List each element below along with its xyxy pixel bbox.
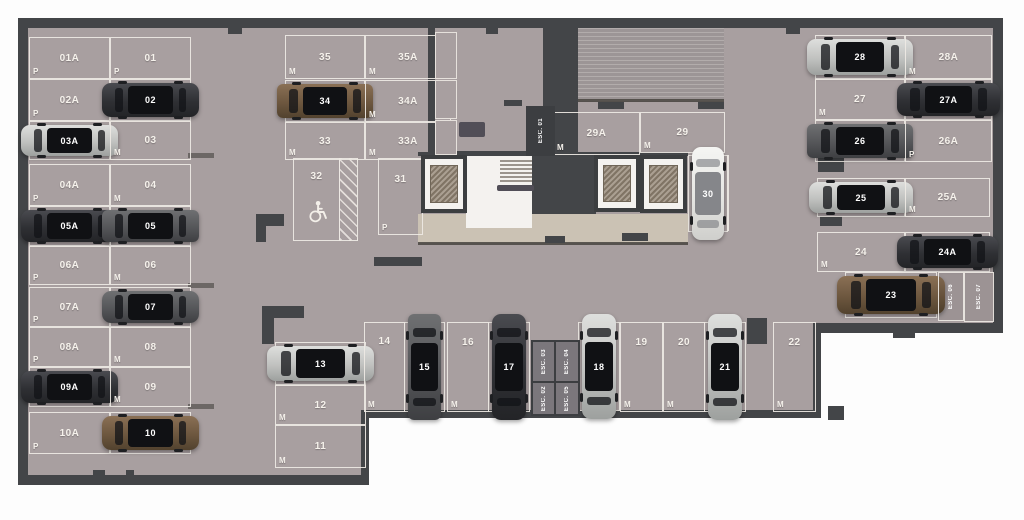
spot-number: 17 xyxy=(503,362,514,372)
wall-34 xyxy=(893,328,915,338)
windshield xyxy=(821,129,831,154)
spot-size-label: M xyxy=(114,194,121,203)
parking-spot-25: 25M xyxy=(817,178,905,217)
rear-window-glass xyxy=(98,130,106,151)
wheel xyxy=(913,115,922,118)
wall-20 xyxy=(532,152,596,214)
spot-size-label: P xyxy=(33,67,38,76)
spot-size-label: M xyxy=(289,67,296,76)
parking-spot-26: 26M xyxy=(815,120,905,162)
spot-number: 15 xyxy=(419,362,430,372)
wheel xyxy=(406,331,409,340)
car-roof: 13 xyxy=(296,349,345,378)
windshield xyxy=(115,214,124,237)
stairwell-label: ESC. 06 xyxy=(948,284,954,309)
parking-spot-23: 23M xyxy=(845,272,937,318)
parking-spot-29A: 29AM xyxy=(553,112,640,155)
rear-window-glass xyxy=(978,88,986,110)
spot-number: 34 xyxy=(319,96,330,106)
spot-number: 10A xyxy=(30,413,109,453)
spot-number: 10 xyxy=(145,428,156,438)
rear-window-glass xyxy=(179,88,187,111)
tread-45 xyxy=(500,176,532,178)
car-roof: 28 xyxy=(836,42,885,72)
spot-number: 06A xyxy=(30,247,109,284)
wall-24 xyxy=(262,306,274,344)
wheel xyxy=(887,37,896,40)
spot-size-label: M xyxy=(909,205,916,214)
car-top-view: 30 xyxy=(692,147,724,240)
car-top-view: 24A xyxy=(897,236,998,268)
car-top-view: 23 xyxy=(837,276,945,314)
windshield xyxy=(910,88,919,112)
spot-number: 08 xyxy=(111,328,190,366)
wall-31 xyxy=(622,233,648,241)
rear-window-glass xyxy=(352,352,361,376)
spot-number: 26 xyxy=(854,136,865,146)
spot-number: 24 xyxy=(818,233,904,271)
rear-window-glass xyxy=(179,421,187,444)
car-top-view: 10 xyxy=(102,416,199,450)
stairwell-label: ESC. 02 xyxy=(541,386,547,411)
spot-number: 28A xyxy=(906,36,991,78)
wheel xyxy=(174,241,183,244)
windshield xyxy=(823,186,832,208)
wheel xyxy=(913,267,922,270)
wheel xyxy=(525,394,528,403)
wheel xyxy=(37,241,46,244)
car-roof: 07 xyxy=(128,294,173,320)
wheel xyxy=(706,331,709,340)
parking-spot-26A: 26AP xyxy=(905,120,992,162)
car-roof: 25 xyxy=(837,185,885,210)
parking-spot-04: 04M xyxy=(110,164,191,206)
spot-size-label: M xyxy=(909,67,916,76)
spot-size-label: M xyxy=(821,260,828,269)
parking-spot-01A: 01AP xyxy=(29,37,110,79)
tick-54 xyxy=(188,283,214,288)
wheel xyxy=(37,208,46,211)
spot-number: 02A xyxy=(30,80,109,120)
parking-spot-09: 09M xyxy=(110,367,191,407)
parking-spot-10A: 10AP xyxy=(29,412,110,454)
spot-size-label: M xyxy=(279,456,286,465)
wall-29 xyxy=(698,102,724,109)
wheel xyxy=(887,122,896,125)
spot-number: 22 xyxy=(774,323,815,411)
wheel xyxy=(854,274,863,277)
wheelchair-icon xyxy=(306,200,328,224)
wheel xyxy=(118,289,127,292)
wheel xyxy=(93,402,102,405)
wall-36 xyxy=(486,28,498,34)
spot-size-label: P xyxy=(33,315,38,324)
parking-spot-06A: 06AP xyxy=(29,246,110,285)
windshield xyxy=(34,129,43,151)
elevator-3 xyxy=(640,155,687,213)
fixture-51 xyxy=(459,122,485,137)
car-roof: 34 xyxy=(303,87,347,115)
spot-number: 06 xyxy=(111,247,190,284)
spot-number: 07 xyxy=(145,302,156,312)
parking-spot-02A: 02AP xyxy=(29,79,110,121)
wheel xyxy=(93,155,102,158)
wheel xyxy=(118,241,127,244)
windshield xyxy=(910,240,919,263)
wheel xyxy=(284,380,293,383)
wheel xyxy=(174,208,183,211)
parking-spot-15: 15M xyxy=(404,322,445,412)
spot-number: 25 xyxy=(855,193,866,203)
car-top-view: 34 xyxy=(277,84,373,118)
stairwell-esc-05: ESC. 05 xyxy=(554,381,580,416)
wheel xyxy=(118,449,127,452)
spot-number: 08A xyxy=(30,328,109,366)
wall-8 xyxy=(18,18,28,485)
car-top-view: 15 xyxy=(408,314,441,420)
wheel xyxy=(580,393,583,402)
wheel xyxy=(741,394,744,403)
windshield xyxy=(497,328,522,338)
parking-spot-31: 31P xyxy=(378,158,423,235)
wheel xyxy=(887,74,896,77)
car-top-view: 05 xyxy=(102,210,199,242)
parking-spot-07: 07M xyxy=(110,287,191,327)
wheel xyxy=(887,157,896,160)
parking-spot-32: 32 xyxy=(293,158,340,241)
car-top-view: 03A xyxy=(21,125,118,156)
parking-spot-27: 27M xyxy=(815,79,905,120)
wheel xyxy=(824,122,833,125)
windshield xyxy=(281,351,291,376)
parking-spot-30: 30P xyxy=(688,155,728,232)
spot-number: 01 xyxy=(111,38,190,78)
wheel xyxy=(919,313,928,316)
car-roof: 03A xyxy=(47,128,92,153)
wheel xyxy=(37,123,46,126)
wheel xyxy=(580,331,583,340)
rear-window-glass xyxy=(497,398,520,406)
spot-size-label: P xyxy=(909,150,914,159)
spot-number: 05A xyxy=(60,221,78,231)
wheel xyxy=(824,74,833,77)
car-top-view: 26 xyxy=(807,124,913,158)
white-40 xyxy=(466,156,532,228)
parking-spot-28A: 28AM xyxy=(905,35,992,79)
wheel xyxy=(824,37,833,40)
hatch-57 xyxy=(339,158,358,241)
parking-spot-02: 02M xyxy=(110,79,191,121)
stairwell-esc-06: ESC. 06 xyxy=(938,272,964,321)
wheel xyxy=(37,155,46,158)
parking-spot-17: 17M xyxy=(488,322,530,412)
shelf-50 xyxy=(435,120,457,155)
spot-size-label: M xyxy=(114,395,121,404)
wheel xyxy=(292,117,301,120)
parking-spot-13: 13M xyxy=(275,342,366,385)
parking-spot-20: 20M xyxy=(663,322,705,412)
parking-spot-25A: 25AM xyxy=(905,178,990,217)
car-roof: 21 xyxy=(711,343,739,392)
wall-37 xyxy=(786,28,800,34)
tread-41 xyxy=(500,160,532,162)
parking-spot-05A: 05AP xyxy=(29,206,110,246)
stairwell-label: ESC. 07 xyxy=(976,284,982,309)
spot-number: 24A xyxy=(938,247,956,257)
wall-10 xyxy=(18,475,369,485)
wheel xyxy=(118,116,127,119)
wheel xyxy=(292,82,301,85)
car-top-view: 02 xyxy=(102,83,199,117)
spot-number: 03 xyxy=(111,122,190,159)
spot-number: 23 xyxy=(885,290,896,300)
spot-number: 21 xyxy=(719,362,730,372)
car-roof: 27A xyxy=(925,86,972,113)
wheel xyxy=(118,414,127,417)
wall-52 xyxy=(504,100,522,106)
wall-32 xyxy=(374,257,422,266)
wheel xyxy=(174,81,183,84)
rear-window-glass xyxy=(891,45,899,70)
spot-number: 04 xyxy=(111,165,190,205)
elevator-cab xyxy=(430,165,458,203)
spot-number: 27A xyxy=(939,95,957,105)
wheel xyxy=(490,394,493,403)
spot-number: 12 xyxy=(276,386,365,424)
spot-number: 35 xyxy=(286,36,364,78)
spot-size-label: M xyxy=(369,148,376,157)
spot-number: 09 xyxy=(111,368,190,406)
wall-30 xyxy=(545,236,565,243)
car-top-view: 25 xyxy=(809,182,913,213)
wheel xyxy=(975,81,984,84)
spot-size-label: P xyxy=(33,355,38,364)
wheel xyxy=(975,115,984,118)
car-roof: 05 xyxy=(128,213,173,239)
rear-window-glass xyxy=(98,376,106,398)
spot-size-label: P xyxy=(33,273,38,282)
parking-spot-04A: 04AP xyxy=(29,164,110,206)
stairwell-label: ESC. 05 xyxy=(564,386,570,411)
windshield xyxy=(413,328,437,338)
spot-size-label: M xyxy=(369,110,376,119)
spot-size-label: M xyxy=(279,413,286,422)
car-top-view: 09A xyxy=(21,371,118,403)
spot-number: 33 xyxy=(286,123,364,159)
wheel xyxy=(826,212,835,215)
fixture-47 xyxy=(497,185,534,191)
parking-spot-07A: 07AP xyxy=(29,287,110,327)
wheel xyxy=(723,162,726,171)
car-roof: 05A xyxy=(47,213,92,239)
elevator-1 xyxy=(421,155,467,213)
parking-spot-09A: 09AP xyxy=(29,367,110,407)
rear-window-glass xyxy=(891,129,899,152)
spot-size-label: M xyxy=(368,400,375,409)
windshield xyxy=(289,89,298,114)
stairwell-esc-01: ESC. 01 xyxy=(526,106,555,156)
wall-22 xyxy=(256,214,266,242)
wheel xyxy=(174,289,183,292)
windshield xyxy=(821,44,831,70)
wheel xyxy=(887,212,896,215)
spot-number: 13 xyxy=(315,359,326,369)
spot-size-label: M xyxy=(644,141,651,150)
windshield xyxy=(34,375,43,398)
wheel xyxy=(913,234,922,237)
spot-size-label: P xyxy=(382,223,387,232)
spot-number: 09A xyxy=(60,382,78,392)
ramp-5 xyxy=(577,28,724,102)
parking-spot-14: 14M xyxy=(364,322,405,412)
elevator-cab xyxy=(649,165,678,203)
spot-number: 01A xyxy=(30,38,109,78)
rear-window-glass xyxy=(179,215,187,237)
tread-42 xyxy=(500,164,532,166)
parking-spot-03A: 03AP xyxy=(29,121,110,160)
spot-size-label: M xyxy=(289,148,296,157)
car-top-view: 27A xyxy=(897,83,1000,116)
car-roof: 09A xyxy=(47,374,92,400)
wall-27 xyxy=(820,216,842,226)
windshield xyxy=(713,328,738,338)
parking-spot-12: 12M xyxy=(275,385,366,425)
parking-spot-19: 19M xyxy=(620,322,663,412)
tick-53 xyxy=(188,153,214,158)
car-roof: 24A xyxy=(924,239,970,265)
parking-spot-05: 05M xyxy=(110,206,191,246)
wheel xyxy=(490,331,493,340)
car-roof: 26 xyxy=(836,127,885,155)
wall-39 xyxy=(126,470,134,476)
wheel xyxy=(913,81,922,84)
wheel xyxy=(723,216,726,225)
spot-size-label: M xyxy=(114,355,121,364)
wheel xyxy=(741,331,744,340)
wheel xyxy=(93,241,102,244)
rear-window-glass xyxy=(922,282,931,308)
wheel xyxy=(615,393,618,402)
wheel xyxy=(440,394,443,403)
wheel xyxy=(348,380,357,383)
spot-size-label: M xyxy=(369,67,376,76)
wheel xyxy=(525,331,528,340)
windshield xyxy=(115,421,124,446)
wheel xyxy=(118,322,127,325)
parking-spot-08A: 08AP xyxy=(29,327,110,367)
stairwell-label: ESC. 04 xyxy=(564,349,570,374)
wheel xyxy=(824,157,833,160)
wheel xyxy=(174,414,183,417)
car-roof: 02 xyxy=(128,86,173,114)
wall-25 xyxy=(747,318,767,344)
wheel xyxy=(826,180,835,183)
parking-spot-11: 11M xyxy=(275,425,366,468)
windshield xyxy=(587,328,612,337)
spot-size-label: M xyxy=(114,148,121,157)
spot-size-label: M xyxy=(114,273,121,282)
spot-number: 19 xyxy=(621,323,662,411)
car-roof: 18 xyxy=(585,342,613,390)
wheel xyxy=(615,331,618,340)
rear-window-glass xyxy=(353,89,361,112)
wall-38 xyxy=(93,470,105,476)
spot-number: 05 xyxy=(145,221,156,231)
spot-number: 26A xyxy=(906,121,991,161)
parking-spot-34: 34M xyxy=(285,80,365,122)
wheel xyxy=(973,234,982,237)
spot-number: 03A xyxy=(60,136,78,146)
wheel xyxy=(973,267,982,270)
spot-size-label: M xyxy=(451,400,458,409)
windshield xyxy=(115,295,124,318)
shelf-48 xyxy=(435,32,457,79)
parking-spot-27A: 27AP xyxy=(905,79,992,120)
wheel xyxy=(37,402,46,405)
spot-size-label: M xyxy=(667,400,674,409)
wheel xyxy=(284,344,293,347)
spot-number: 29A xyxy=(554,113,639,154)
wheel xyxy=(406,394,409,403)
parking-spot-16: 16M xyxy=(447,322,489,412)
shelf-49 xyxy=(435,80,457,119)
wheel xyxy=(93,369,102,372)
spot-size-label: M xyxy=(624,400,631,409)
spot-number: 30 xyxy=(702,189,713,199)
parking-spot-18: 18M xyxy=(578,322,620,411)
parking-spot-21: 21M xyxy=(704,322,746,412)
wheel xyxy=(118,208,127,211)
spot-number: 27 xyxy=(816,80,904,119)
wheel xyxy=(118,81,127,84)
wheel xyxy=(93,123,102,126)
spot-number: 14 xyxy=(365,323,404,411)
windshield xyxy=(34,214,43,237)
wheel xyxy=(440,331,443,340)
wheel xyxy=(174,322,183,325)
car-roof: 10 xyxy=(128,419,173,447)
stairwell-esc-04: ESC. 04 xyxy=(554,340,580,383)
car-roof: 15 xyxy=(411,343,438,392)
spot-size-label: M xyxy=(557,143,564,152)
wheel xyxy=(93,208,102,211)
spot-number: 16 xyxy=(448,323,488,411)
parking-floor-plan: 01AP01P02AP02M03AP03M04AP04M05AP05M06AP0… xyxy=(0,0,1024,520)
spot-number: 25A xyxy=(906,179,989,216)
wheel xyxy=(37,369,46,372)
spot-number: 07A xyxy=(30,288,109,326)
wall-7 xyxy=(18,18,1003,28)
car-top-view: 21 xyxy=(708,314,742,420)
wheel xyxy=(854,313,863,316)
wheel xyxy=(174,449,183,452)
car-top-view: 18 xyxy=(582,314,616,419)
wheel xyxy=(174,116,183,119)
windshield xyxy=(696,159,719,167)
spot-number: 02 xyxy=(145,95,156,105)
parking-spot-24: 24M xyxy=(817,232,905,272)
spot-size-label: M xyxy=(777,400,784,409)
parking-spot-22: 22M xyxy=(773,322,816,412)
wall-28 xyxy=(598,102,624,109)
rear-window-glass xyxy=(413,398,435,406)
parking-spot-10: 10M xyxy=(110,412,191,454)
parking-spot-01: 01P xyxy=(110,37,191,79)
car-top-view: 07 xyxy=(102,291,199,323)
car-roof: 23 xyxy=(866,279,916,310)
parking-spot-35: 35M xyxy=(285,35,365,79)
stairwell-label: ESC. 03 xyxy=(541,349,547,374)
